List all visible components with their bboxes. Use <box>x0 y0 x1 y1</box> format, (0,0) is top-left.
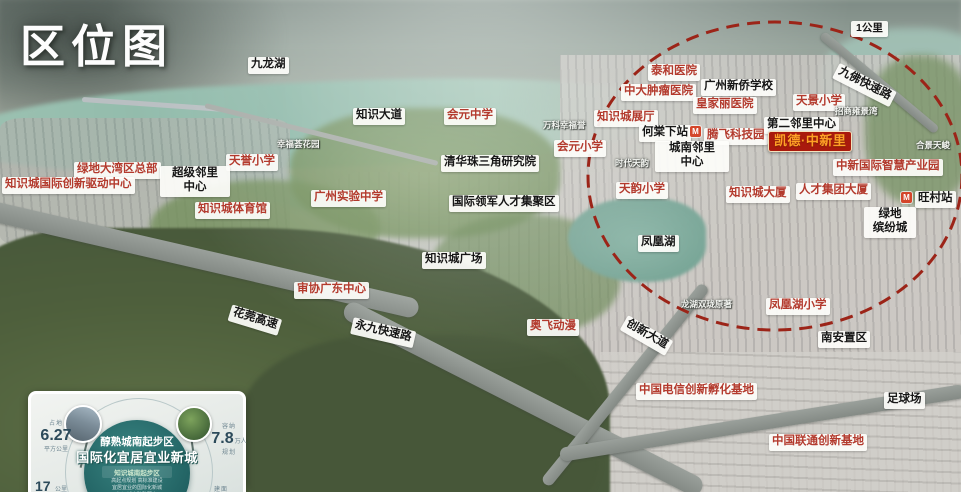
phoenix-lake-label: 凤凰湖 <box>638 235 679 252</box>
stat-distance-value: 17 <box>35 478 51 492</box>
vanke-xingfuyu-label: 万科幸福誉 <box>543 120 586 130</box>
stat-population-label: 容纳 <box>207 421 251 430</box>
wangcun-metro-icon: M <box>901 192 912 203</box>
location-map: 九龙湖幸福荟花园天誉小学绿地大湾区总部知识城国际创新驱动中心超级邻里 中心知识城… <box>0 0 961 492</box>
shidai-tianyun-label: 时代天韵 <box>615 158 649 168</box>
jiulong-lake-label: 九龙湖 <box>248 57 289 74</box>
china-unicom-innovation-base-label: 中国联通创新基地 <box>769 434 867 451</box>
tianyu-primary-school-label: 天誉小学 <box>226 154 278 171</box>
stat-area-value: 6.27 <box>33 427 79 444</box>
stat-area-unit: 平方公里 <box>33 444 79 453</box>
zhaoshang-yongjingwan-label: 招商雍景湾 <box>835 106 878 116</box>
super-neighborhood-center-label: 超级邻里 中心 <box>160 166 230 197</box>
stat-area: 占地 6.27 平方公里 <box>33 418 79 453</box>
gz-experimental-school-label: 广州实验中学 <box>311 190 386 207</box>
international-talent-cluster-zone-label: 国际领军人才集聚区 <box>449 195 559 212</box>
stat-population-unit: 万人 <box>235 436 247 445</box>
chengnan-neighborhood-center-label: 城南邻里 中心 <box>655 141 729 172</box>
chuangxin-avenue-label: 创新大道 <box>620 315 673 356</box>
huaguan-expressway-label: 花莞高速 <box>228 304 283 335</box>
shenxie-guangdong-center-label: 审协广东中心 <box>294 282 369 299</box>
royal-lee-hospital-label: 皇家丽医院 <box>693 97 757 114</box>
xingfuhui-garden-label: 幸福荟花园 <box>277 139 320 149</box>
map-title: 区位图 <box>20 10 173 75</box>
kc-tower-label: 知识城大厦 <box>726 186 790 203</box>
longhu-shuanglong-estate-label: 龙湖双珑原著 <box>681 299 732 309</box>
scale-1km-label: 1公里 <box>851 21 888 37</box>
hetangxia-station-label: 何棠下站 <box>639 125 691 142</box>
capitaland-zhongxinli-label: 凯德·中新里 <box>768 131 852 152</box>
panel-subheading: 国际化宜居宜业新城 <box>67 447 207 466</box>
stat-population-value: 7.8 <box>211 430 233 447</box>
panel-chip: 知识城南起步区 <box>102 466 172 478</box>
hejing-tianjun-label: 合景天峻 <box>916 140 950 150</box>
huiyuan-middle-school-label: 会元中学 <box>444 108 496 125</box>
tianyun-primary-school-label: 天韵小学 <box>616 182 668 199</box>
taihe-hospital-label: 泰和医院 <box>648 64 700 81</box>
stat-distance: 17 公里 <box>35 478 95 492</box>
sino-singapore-smart-industrial-park-label: 中新国际智慧产业园 <box>833 159 943 176</box>
yongjiu-expressway-label: 永九快速路 <box>350 317 416 348</box>
stat-extra-label: 建面 <box>214 484 228 492</box>
stat-population: 容纳 7.8 万人 规划 <box>207 421 251 456</box>
zhishi-avenue-label: 知识大道 <box>353 108 405 125</box>
talent-group-tower-label: 人才集团大厦 <box>796 183 871 200</box>
zhongda-cancer-hospital-label: 中大肿瘤医院 <box>621 84 696 101</box>
greenland-binfencheng-label: 绿地 缤纷城 <box>864 207 916 238</box>
huiyuan-primary-school-label: 会元小学 <box>554 140 606 157</box>
phoenix-lake-primary-school-label: 凤凰湖小学 <box>766 298 830 315</box>
gz-xinqiao-school-label: 广州新侨学校 <box>701 79 776 96</box>
kc-international-innovation-center-label: 知识城国际创新驱动中心 <box>2 177 135 194</box>
stat-population-sub: 规划 <box>207 447 251 456</box>
aofei-animation-label: 奥飞动漫 <box>527 319 579 336</box>
stat-distance-unit: 公里 <box>55 487 67 492</box>
panel-fineprint-1: 高起点规划 高标准建设 <box>84 478 190 484</box>
china-telecom-incubation-base-label: 中国电信创新孵化基地 <box>636 383 757 400</box>
kc-stadium-label: 知识城体育馆 <box>195 202 270 219</box>
panel-fineprint-2: 宜居宜业的国际化新城 <box>84 485 190 491</box>
info-panel: 醇熟城南起步区 国际化宜居宜业新城 知识城南起步区 高起点规划 高标准建设 宜居… <box>28 391 246 492</box>
wangcun-station-label: 旺村站 <box>915 191 956 208</box>
hetangxia-metro-icon: M <box>690 126 701 137</box>
kc-plaza-label: 知识城广场 <box>422 252 486 269</box>
stat-area-label: 占地 <box>33 418 79 427</box>
south-resettlement-area-label: 南安置区 <box>818 331 870 348</box>
tsinghua-pearl-river-delta-institute-label: 清华珠三角研究院 <box>441 155 539 172</box>
football-field-label: 足球场 <box>884 392 925 409</box>
